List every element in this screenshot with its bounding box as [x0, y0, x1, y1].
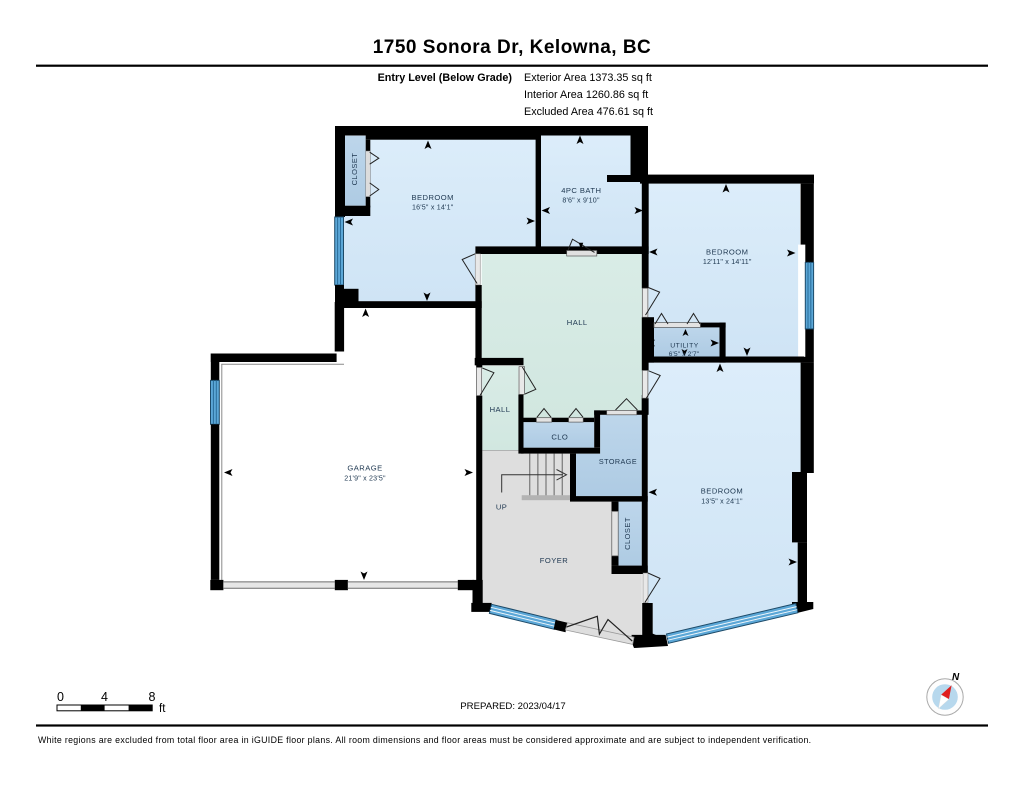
svg-text:16'5" x 14'1": 16'5" x 14'1" [412, 204, 454, 212]
svg-text:PREPARED: 2023/04/17: PREPARED: 2023/04/17 [460, 701, 565, 712]
svg-text:8: 8 [149, 690, 156, 704]
svg-text:White regions are excluded fro: White regions are excluded from total fl… [38, 735, 811, 745]
svg-text:8'6" x 9'10": 8'6" x 9'10" [562, 197, 600, 205]
svg-text:4: 4 [101, 690, 108, 704]
svg-text:UP: UP [496, 503, 507, 512]
svg-text:Interior Area 1260.86 sq ft: Interior Area 1260.86 sq ft [524, 89, 648, 101]
svg-text:13'5" x 24'1": 13'5" x 24'1" [701, 498, 743, 506]
svg-text:CLO: CLO [551, 433, 568, 442]
svg-text:STORAGE: STORAGE [599, 457, 637, 466]
svg-text:CLOSET: CLOSET [350, 153, 359, 186]
svg-text:BEDROOM: BEDROOM [706, 248, 748, 257]
svg-text:4PC BATH: 4PC BATH [561, 186, 601, 195]
svg-text:BEDROOM: BEDROOM [412, 193, 454, 202]
svg-text:BEDROOM: BEDROOM [701, 487, 743, 496]
svg-text:0: 0 [57, 690, 64, 704]
svg-text:Exterior Area 1373.35 sq ft: Exterior Area 1373.35 sq ft [524, 72, 652, 84]
svg-text:N: N [952, 672, 960, 683]
svg-text:12'11" x 14'11": 12'11" x 14'11" [703, 258, 752, 266]
svg-text:GARAGE: GARAGE [347, 464, 382, 473]
svg-text:HALL: HALL [567, 318, 588, 327]
svg-text:FOYER: FOYER [540, 556, 568, 565]
svg-text:ft: ft [159, 703, 166, 715]
svg-text:Excluded Area 476.61 sq ft: Excluded Area 476.61 sq ft [524, 106, 653, 118]
svg-text:1750 Sonora Dr, Kelowna, BC: 1750 Sonora Dr, Kelowna, BC [373, 37, 652, 58]
svg-text:21'9" x 23'5": 21'9" x 23'5" [344, 475, 386, 483]
svg-text:6'5" x 2'7": 6'5" x 2'7" [669, 351, 700, 358]
svg-text:Entry Level (Below Grade): Entry Level (Below Grade) [378, 72, 513, 84]
svg-text:HALL: HALL [490, 405, 511, 414]
svg-text:UTILITY: UTILITY [670, 343, 698, 350]
svg-text:CLOSET: CLOSET [623, 517, 632, 550]
